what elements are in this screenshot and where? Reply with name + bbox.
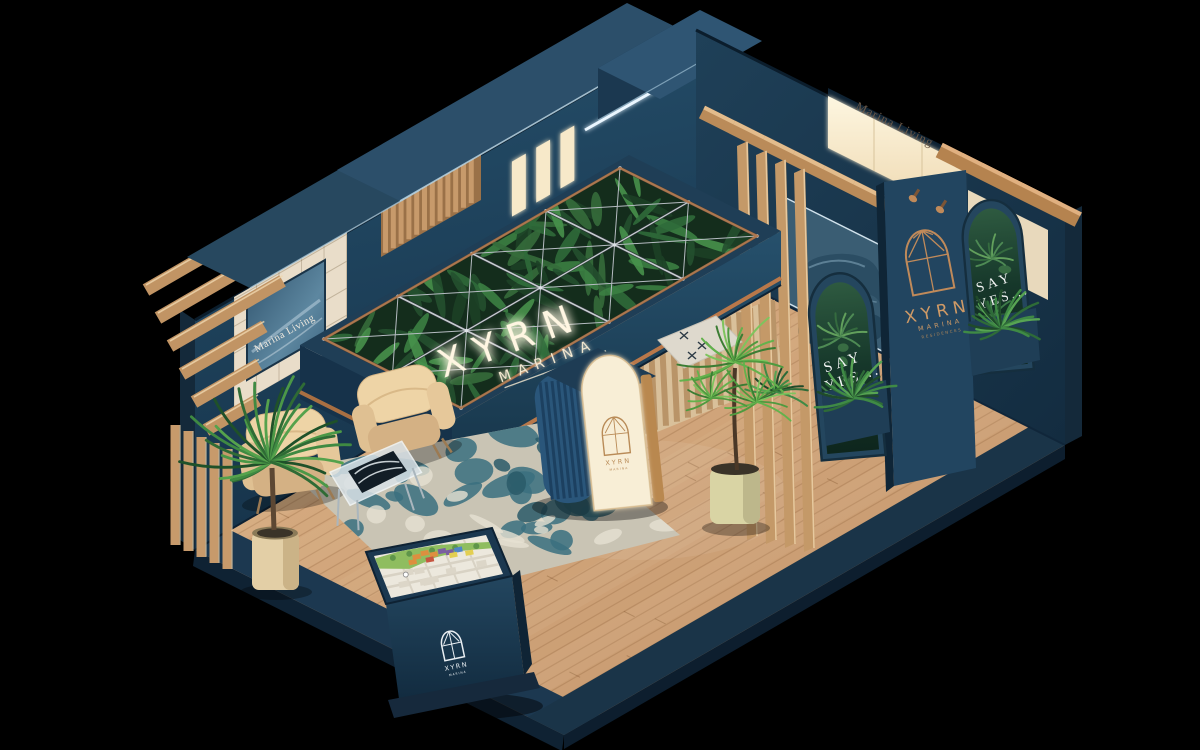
truss-node	[539, 286, 543, 290]
palm-planter-shade	[283, 532, 299, 590]
dracaena-planter-shade	[743, 468, 760, 524]
truss-node	[613, 243, 617, 247]
map-tree-cluster	[473, 543, 479, 549]
reception-desk: XYRN MARINA	[532, 348, 668, 521]
map-tree-cluster	[390, 555, 396, 561]
booth-render: Marina Living Marina Living	[0, 0, 1200, 750]
logo-pillar: XYRN MARINA RESIDENCES	[876, 170, 976, 492]
lit-panel	[560, 126, 574, 189]
palm-trunk	[272, 468, 274, 530]
map-pin	[403, 572, 408, 577]
render-stage: Marina Living Marina Living	[0, 0, 1200, 750]
map-tree-cluster	[406, 551, 412, 557]
lit-panel	[512, 154, 526, 217]
ne-wall-side-edge	[1065, 206, 1082, 445]
lit-panel	[536, 140, 550, 203]
